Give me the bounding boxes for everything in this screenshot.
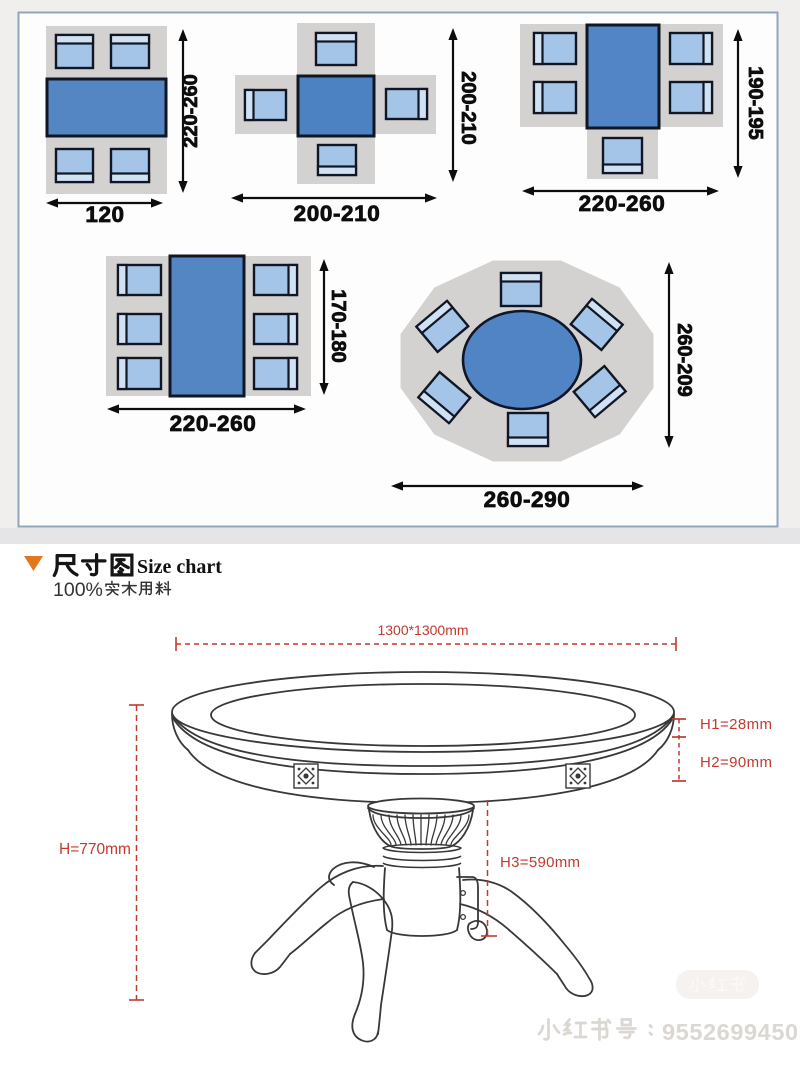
svg-text:H2=90mm: H2=90mm: [700, 754, 772, 771]
svg-text:220-260: 220-260: [180, 74, 202, 147]
svg-text:H1=28mm: H1=28mm: [700, 716, 772, 733]
svg-text:120: 120: [85, 202, 124, 227]
svg-text:Size chart: Size chart: [137, 556, 222, 578]
svg-text:100%: 100%: [53, 579, 103, 601]
svg-text:220-260: 220-260: [170, 411, 257, 436]
svg-text:200-210: 200-210: [457, 71, 479, 144]
svg-text:H3=590mm: H3=590mm: [500, 854, 580, 871]
svg-text:200-210: 200-210: [294, 201, 381, 226]
svg-text:9552699450: 9552699450: [662, 1019, 799, 1045]
svg-text:260-209: 260-209: [673, 323, 695, 396]
svg-text:260-290: 260-290: [484, 487, 571, 512]
svg-text:1300*1300mm: 1300*1300mm: [377, 622, 468, 638]
svg-text:190-195: 190-195: [744, 66, 766, 139]
svg-text:170-180: 170-180: [327, 289, 349, 362]
svg-text:220-260: 220-260: [579, 191, 666, 216]
svg-text:H=770mm: H=770mm: [59, 841, 131, 858]
